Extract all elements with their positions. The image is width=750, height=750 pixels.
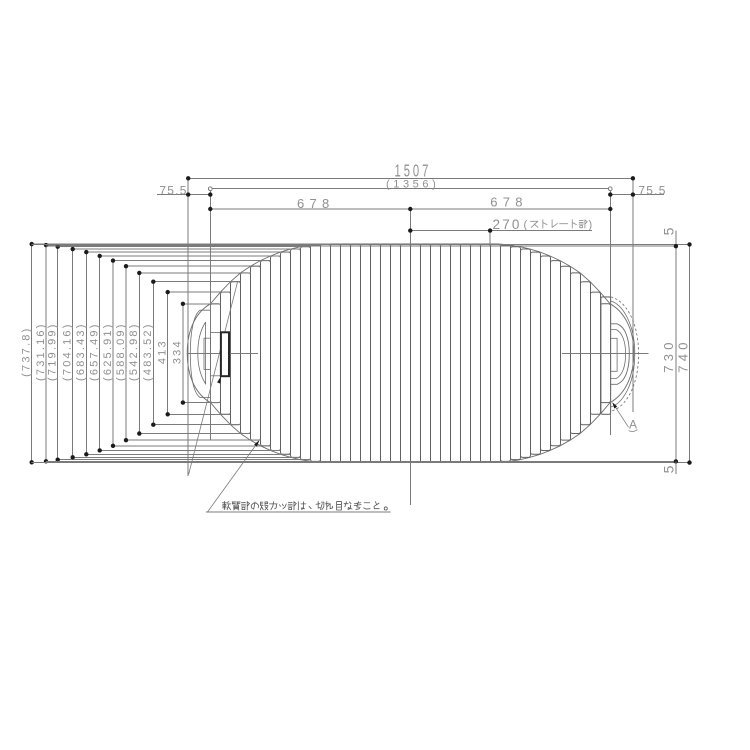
svg-text:(731.16): (731.16) — [35, 322, 47, 381]
svg-text:A: A — [629, 418, 637, 432]
svg-text:(542.98): (542.98) — [128, 322, 140, 381]
svg-text:75.5: 75.5 — [159, 183, 187, 197]
svg-text:5: 5 — [660, 465, 676, 473]
svg-text:(483.52): (483.52) — [142, 322, 154, 381]
svg-text:(737.8): (737.8) — [21, 327, 33, 377]
svg-text:334: 334 — [172, 339, 184, 364]
svg-text:(625.91): (625.91) — [102, 322, 114, 381]
svg-text:730: 730 — [661, 338, 676, 373]
svg-text:(657.49): (657.49) — [89, 322, 101, 381]
svg-text:270: 270 — [493, 217, 522, 232]
svg-text:): ) — [589, 219, 593, 231]
svg-text:(719.99): (719.99) — [47, 322, 59, 381]
svg-text:678: 678 — [490, 194, 528, 209]
svg-text:75.5: 75.5 — [638, 183, 666, 197]
svg-text:(683.43): (683.43) — [75, 322, 87, 381]
svg-text:678: 678 — [297, 196, 335, 211]
svg-text:413: 413 — [157, 339, 169, 364]
svg-text:(1356): (1356) — [386, 179, 439, 191]
svg-text:(: ( — [524, 219, 528, 231]
svg-text:(704.16): (704.16) — [62, 322, 74, 381]
svg-text:5: 5 — [660, 227, 676, 235]
svg-text:740: 740 — [676, 338, 691, 373]
svg-text:(588.09): (588.09) — [115, 322, 127, 381]
